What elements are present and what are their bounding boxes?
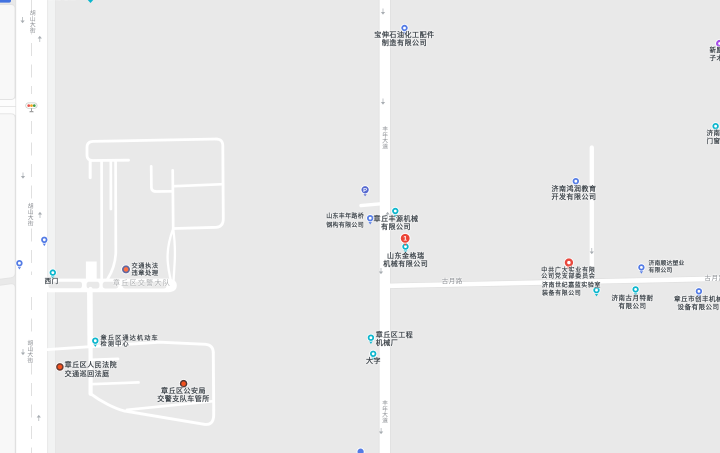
svg-text:1: 1 (403, 236, 407, 243)
svg-text:P: P (363, 188, 367, 194)
